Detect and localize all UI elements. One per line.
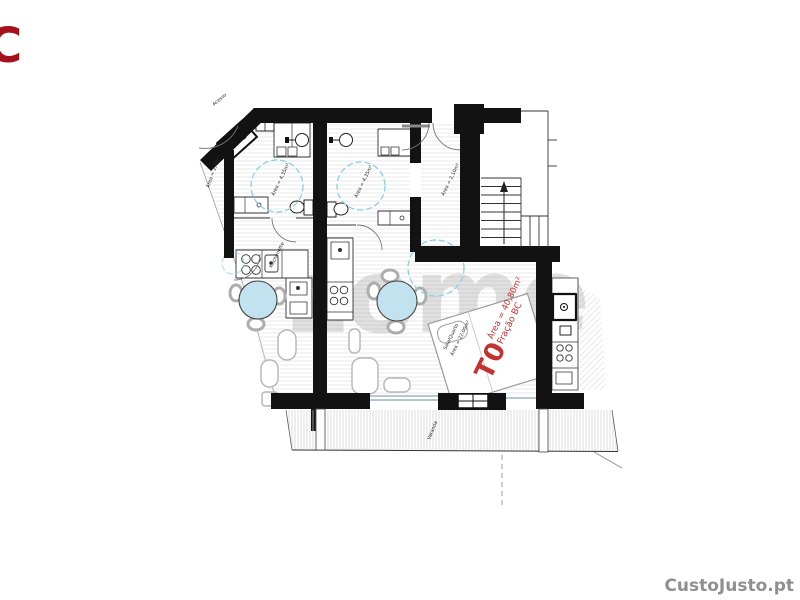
vanity-right: [378, 211, 411, 225]
kitchen-center: [327, 238, 353, 320]
area-annotation: Acesso: [211, 92, 228, 107]
balcony: [286, 409, 618, 452]
vanity-left: [234, 197, 268, 213]
corner-letter: C: [0, 22, 22, 70]
staircase: [481, 111, 557, 247]
floorplan-image: zome: [0, 0, 800, 600]
window-cross: [458, 394, 488, 408]
kitchenette-right: [552, 278, 578, 390]
custojusto-watermark: CustoJusto.pt: [664, 576, 794, 596]
closet-right: [378, 129, 411, 156]
extension-lines: [502, 452, 622, 505]
floor-plan-svg: zome: [0, 0, 800, 600]
